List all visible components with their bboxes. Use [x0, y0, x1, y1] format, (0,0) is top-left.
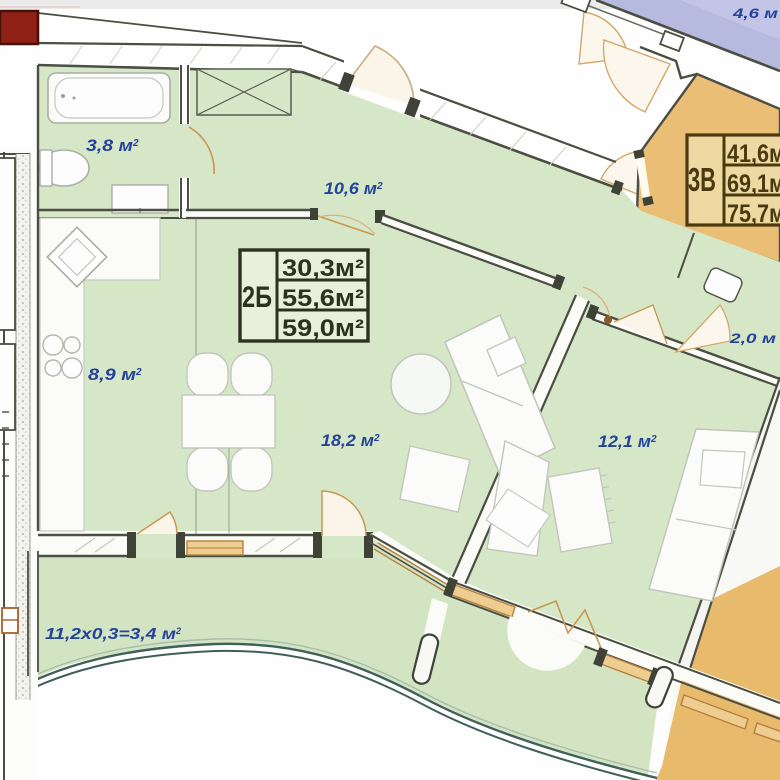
- svg-text:3В: 3В: [688, 161, 716, 198]
- svg-text:12,1 м2: 12,1 м2: [598, 432, 657, 451]
- svg-text:2Б: 2Б: [242, 281, 272, 314]
- svg-text:10,6 м2: 10,6 м2: [324, 179, 383, 198]
- svg-text:30,3м²: 30,3м²: [282, 255, 364, 282]
- svg-text:41,6м: 41,6м: [727, 140, 780, 168]
- svg-text:18,2 м2: 18,2 м2: [321, 431, 380, 450]
- svg-text:4,6 м: 4,6 м: [732, 5, 779, 21]
- svg-text:75,7м: 75,7м: [727, 200, 780, 228]
- svg-text:8,9 м2: 8,9 м2: [88, 365, 142, 384]
- svg-text:55,6м²: 55,6м²: [282, 285, 364, 312]
- svg-text:3,8 м2: 3,8 м2: [86, 136, 139, 155]
- svg-text:69,1м: 69,1м: [727, 170, 780, 198]
- svg-text:11,2x0,3=3,4 м2: 11,2x0,3=3,4 м2: [45, 626, 181, 643]
- svg-text:59,0м²: 59,0м²: [282, 315, 364, 342]
- svg-text:2,0 м: 2,0 м: [729, 330, 777, 346]
